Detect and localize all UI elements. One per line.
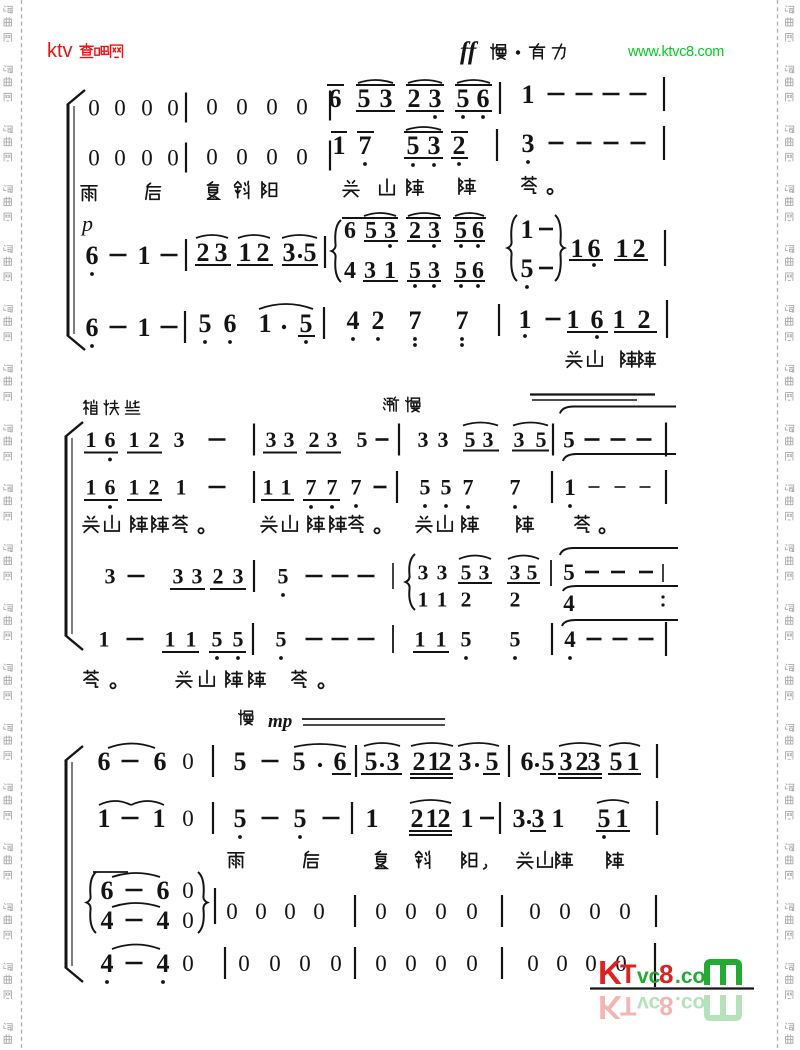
svg-text:7: 7 (463, 475, 474, 500)
svg-text:0: 0 (141, 145, 153, 170)
svg-text:3: 3 (173, 564, 184, 589)
svg-text:1: 1 (552, 804, 565, 833)
svg-text:0: 0 (182, 878, 194, 903)
svg-text:ktv: ktv (47, 40, 73, 62)
svg-text:6: 6 (105, 427, 116, 452)
svg-text:6: 6 (588, 234, 601, 263)
svg-text:1: 1 (186, 627, 197, 652)
svg-text:0: 0 (296, 144, 308, 169)
svg-text:0: 0 (585, 951, 597, 976)
svg-text:5: 5 (521, 254, 534, 283)
svg-text:5: 5 (233, 627, 244, 652)
svg-text:5: 5 (357, 427, 368, 452)
svg-text:2: 2 (638, 305, 651, 334)
svg-text:7: 7 (456, 306, 469, 335)
svg-text:1: 1 (281, 475, 292, 500)
svg-text:vc: vc (637, 965, 661, 988)
svg-text:5: 5 (420, 475, 431, 500)
svg-text:6: 6 (101, 876, 114, 905)
svg-text:5: 5 (536, 427, 547, 452)
svg-text:1: 1 (259, 309, 272, 338)
svg-text:2: 2 (633, 234, 646, 263)
svg-text:1: 1 (564, 475, 576, 500)
svg-text:1: 1 (418, 587, 429, 611)
svg-text:3: 3 (588, 747, 601, 776)
svg-text:6: 6 (105, 475, 116, 500)
svg-text:5: 5 (276, 627, 287, 652)
svg-text:7: 7 (510, 475, 521, 500)
svg-text:5: 5 (465, 427, 476, 452)
svg-text:5: 5 (234, 804, 247, 833)
svg-text:6: 6 (224, 309, 237, 338)
svg-text:3: 3 (418, 427, 429, 452)
svg-text:0: 0 (375, 951, 387, 976)
svg-text:1: 1 (138, 241, 151, 270)
svg-text:0: 0 (466, 951, 478, 976)
svg-text:7: 7 (306, 475, 317, 500)
svg-text:p: p (80, 211, 93, 236)
svg-text:4: 4 (563, 591, 575, 616)
svg-text:2: 2 (257, 238, 270, 267)
svg-text:3: 3 (215, 238, 228, 267)
svg-text:5: 5 (610, 747, 623, 776)
svg-text:0: 0 (114, 95, 126, 120)
svg-text:5: 5 (510, 627, 521, 652)
svg-text:6: 6 (86, 241, 99, 270)
svg-text:ff: ff (460, 38, 479, 65)
svg-text:0: 0 (182, 908, 194, 933)
svg-text:5: 5 (563, 560, 575, 585)
svg-text:0: 0 (527, 951, 539, 976)
svg-text:6: 6 (477, 84, 490, 113)
svg-text:0: 0 (375, 899, 387, 924)
svg-text:6: 6 (157, 876, 170, 905)
svg-text:1: 1 (567, 305, 580, 334)
svg-text:0: 0 (236, 94, 248, 119)
svg-text:5: 5 (294, 804, 307, 833)
svg-text:0: 0 (559, 899, 571, 924)
svg-text:1: 1 (616, 804, 629, 833)
svg-text:1: 1 (519, 305, 532, 334)
svg-text:1: 1 (461, 804, 474, 833)
svg-text:3: 3 (428, 131, 441, 160)
svg-text:2: 2 (197, 238, 210, 267)
svg-text:6: 6 (154, 747, 167, 776)
svg-text:3: 3 (418, 560, 429, 584)
svg-text:1: 1 (366, 804, 379, 833)
svg-text:7: 7 (351, 475, 362, 500)
svg-text:2: 2 (510, 587, 521, 611)
svg-text:3: 3 (459, 747, 472, 776)
svg-text:1: 1 (99, 627, 110, 652)
svg-text:3: 3 (387, 747, 400, 776)
svg-text:2: 2 (149, 427, 160, 452)
svg-text:0: 0 (182, 749, 194, 774)
svg-text:3: 3 (522, 129, 535, 158)
svg-text:5: 5 (486, 747, 499, 776)
svg-text:0: 0 (114, 145, 126, 170)
svg-text:1: 1 (165, 627, 176, 652)
svg-text:3: 3 (233, 564, 244, 589)
svg-text:1: 1 (86, 475, 97, 500)
svg-text:1: 1 (138, 313, 151, 342)
svg-text:3: 3 (510, 560, 521, 584)
svg-text:.co: .co (675, 965, 705, 988)
svg-text:8: 8 (659, 959, 673, 989)
svg-text:3: 3 (105, 564, 116, 589)
svg-text:3: 3 (560, 747, 573, 776)
svg-text:5: 5 (365, 747, 378, 776)
svg-text:5: 5 (300, 309, 313, 338)
svg-text:6: 6 (98, 747, 111, 776)
svg-text:3: 3 (380, 84, 393, 113)
svg-text:1: 1 (86, 427, 97, 452)
svg-text:2: 2 (149, 475, 160, 500)
svg-text:3: 3 (429, 84, 442, 113)
svg-text:5: 5 (527, 560, 538, 584)
svg-text:2: 2 (213, 564, 224, 589)
svg-text:5: 5 (358, 84, 371, 113)
svg-text:1: 1 (333, 131, 346, 160)
svg-text:0: 0 (589, 899, 601, 924)
svg-text:0: 0 (206, 94, 218, 119)
svg-text:1: 1 (436, 627, 447, 652)
svg-text:0: 0 (405, 899, 417, 924)
svg-text:3: 3 (192, 564, 203, 589)
svg-text:7: 7 (359, 131, 372, 160)
svg-text:T: T (620, 959, 637, 989)
svg-text:5: 5 (212, 627, 223, 652)
svg-text:3: 3 (283, 238, 296, 267)
svg-text:6: 6 (86, 313, 99, 342)
svg-text:www.ktvc8.com: www.ktvc8.com (627, 44, 724, 60)
svg-text:0: 0 (313, 899, 325, 924)
svg-text:2: 2 (408, 84, 421, 113)
svg-text:0: 0 (435, 951, 447, 976)
svg-text:5: 5 (304, 238, 317, 267)
svg-text:0: 0 (238, 951, 250, 976)
svg-text:0: 0 (88, 95, 100, 120)
svg-text:6: 6 (344, 218, 356, 244)
svg-text:5: 5 (542, 747, 555, 776)
svg-text:3: 3 (437, 560, 448, 584)
svg-text:4: 4 (101, 949, 114, 978)
svg-text:0: 0 (269, 951, 281, 976)
svg-text:0: 0 (266, 144, 278, 169)
svg-text:2: 2 (372, 306, 385, 335)
svg-text:0: 0 (88, 145, 100, 170)
svg-text:3: 3 (514, 427, 525, 452)
svg-text:3: 3 (483, 427, 494, 452)
svg-text:K: K (598, 954, 622, 991)
svg-text:3: 3 (174, 427, 185, 452)
svg-text:1: 1 (616, 234, 629, 263)
svg-text:0: 0 (206, 144, 218, 169)
svg-text:1: 1 (129, 475, 140, 500)
svg-text:1: 1 (98, 804, 111, 833)
svg-text:2: 2 (309, 427, 320, 452)
svg-text:0: 0 (182, 951, 194, 976)
svg-text:0: 0 (167, 145, 179, 170)
svg-text:0: 0 (556, 951, 568, 976)
svg-text:2: 2 (453, 131, 466, 160)
svg-text:0: 0 (330, 951, 342, 976)
svg-text:2: 2 (439, 747, 452, 776)
svg-text:1: 1 (627, 747, 640, 776)
svg-text:5: 5 (293, 747, 306, 776)
svg-text:0: 0 (435, 899, 447, 924)
svg-text:3: 3 (327, 427, 338, 452)
svg-text:1: 1 (613, 305, 626, 334)
svg-text:1: 1 (415, 627, 426, 652)
svg-text:3: 3 (266, 427, 277, 452)
svg-text:0: 0 (296, 94, 308, 119)
svg-text:2: 2 (438, 804, 451, 833)
svg-text:4: 4 (157, 906, 170, 935)
svg-text:0: 0 (236, 144, 248, 169)
svg-text:6: 6 (329, 84, 342, 113)
svg-text:5: 5 (461, 560, 472, 584)
svg-text:5: 5 (598, 804, 611, 833)
svg-text:1: 1 (129, 427, 140, 452)
svg-text:0: 0 (255, 899, 267, 924)
svg-text:mp: mp (268, 711, 292, 732)
svg-text:1: 1 (263, 475, 274, 500)
svg-text:1: 1 (437, 587, 448, 611)
svg-text:7: 7 (327, 475, 338, 500)
svg-text:4: 4 (564, 627, 576, 652)
svg-text:0: 0 (466, 899, 478, 924)
svg-text:5: 5 (278, 564, 289, 589)
svg-text:6: 6 (521, 747, 534, 776)
svg-text:5: 5 (457, 84, 470, 113)
svg-text:1: 1 (239, 238, 252, 267)
svg-text:7: 7 (409, 306, 422, 335)
svg-text:2: 2 (413, 747, 426, 776)
svg-text:0: 0 (167, 95, 179, 120)
svg-text:0: 0 (284, 899, 296, 924)
svg-text:0: 0 (182, 806, 194, 831)
svg-text:3: 3 (438, 427, 449, 452)
svg-text:5: 5 (563, 427, 575, 452)
svg-text:4: 4 (157, 949, 170, 978)
svg-text:1: 1 (521, 215, 534, 244)
svg-text:5: 5 (441, 475, 452, 500)
svg-text:0: 0 (266, 94, 278, 119)
svg-text:0: 0 (226, 899, 238, 924)
svg-text:1: 1 (571, 234, 584, 263)
svg-text:0: 0 (141, 95, 153, 120)
svg-text:6: 6 (334, 747, 347, 776)
svg-text:4: 4 (101, 906, 114, 935)
svg-text:0: 0 (529, 899, 541, 924)
svg-text:0: 0 (405, 951, 417, 976)
svg-text:5: 5 (461, 627, 472, 652)
svg-text:3: 3 (284, 427, 295, 452)
svg-text:5: 5 (199, 309, 212, 338)
svg-text:3: 3 (479, 560, 490, 584)
svg-text:6: 6 (591, 305, 604, 334)
svg-text:4: 4 (347, 306, 360, 335)
svg-text:3: 3 (513, 804, 526, 833)
svg-text:3: 3 (532, 804, 545, 833)
svg-text:0: 0 (619, 899, 631, 924)
svg-text:2: 2 (411, 804, 424, 833)
svg-text:1: 1 (176, 475, 187, 500)
svg-text:1: 1 (522, 80, 535, 109)
svg-text:5: 5 (407, 131, 420, 160)
svg-text:5: 5 (234, 747, 247, 776)
svg-text:2: 2 (461, 587, 472, 611)
svg-text:1: 1 (153, 804, 166, 833)
svg-text:4: 4 (344, 258, 356, 284)
svg-text:0: 0 (299, 951, 311, 976)
